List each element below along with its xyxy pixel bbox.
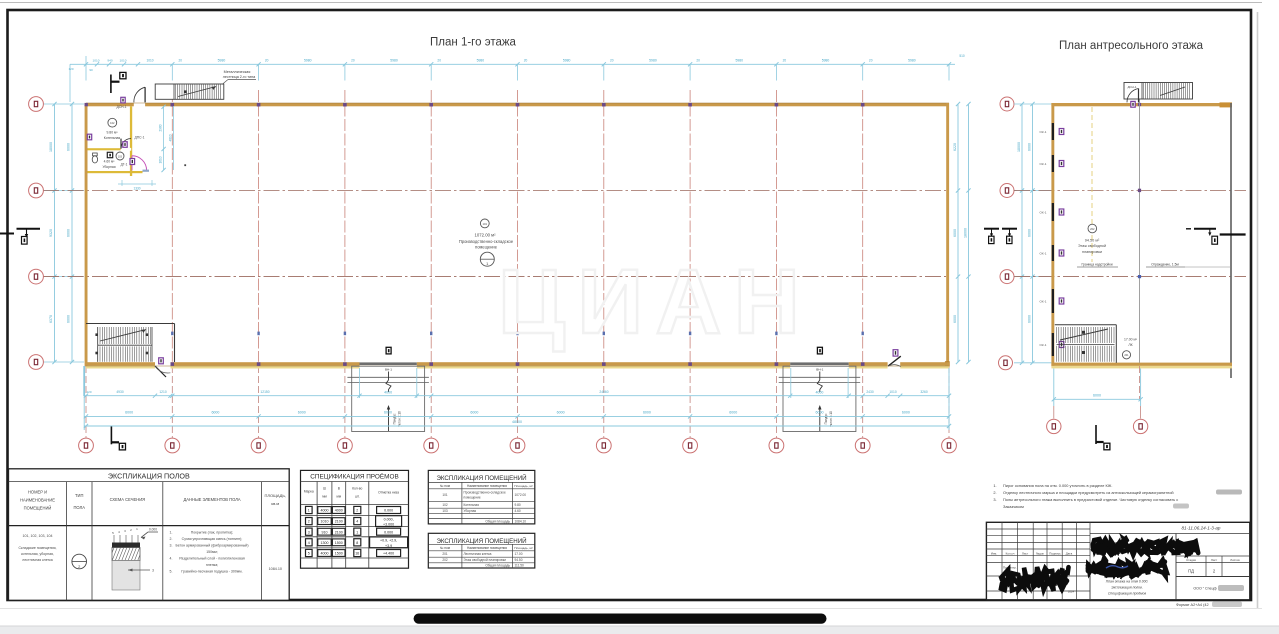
svg-text:1.: 1. [993,483,996,488]
svg-text:20: 20 [610,59,614,63]
svg-text:Общая площадь: Общая площадь [485,520,510,524]
svg-text:6000: 6000 [1093,393,1101,397]
svg-text:3260: 3260 [920,390,928,394]
svg-text:Спецификация проёмов: Спецификация проёмов [1108,592,1147,596]
svg-text:18000: 18000 [1017,142,1021,152]
svg-text:Стадия: Стадия [1186,558,1196,562]
svg-text:Складские помещения,: Складские помещения, [18,546,56,550]
svg-text:4: 4 [356,520,358,524]
svg-text:4000: 4000 [384,391,392,395]
svg-text:17.00 м²: 17.00 м² [1124,338,1138,342]
svg-text:6000: 6000 [816,410,824,414]
svg-text:Заказчиком: Заказчиком [1003,504,1024,509]
svg-text:5: 5 [308,552,310,556]
svg-text:планировки: планировки [1082,250,1102,254]
svg-text:ЭКСПЛИКАЦИЯ ПОЛОВ: ЭКСПЛИКАЦИЯ ПОЛОВ [108,472,190,481]
svg-text:ООО " Спецф: ООО " Спецф [1193,587,1216,591]
svg-text:+3.000: +3.000 [383,523,394,527]
svg-text:6000: 6000 [384,410,392,414]
svg-text:СПЕЦИФИКАЦИЯ ПРОЁМОВ: СПЕЦИФИКАЦИЯ ПРОЁМОВ [310,473,398,481]
svg-text:Листов: Листов [1230,558,1240,562]
svg-text:20: 20 [869,59,873,63]
svg-text:90: 90 [89,68,93,72]
svg-text:102: 102 [442,503,448,507]
svg-text:3: 3 [308,530,310,534]
svg-text:6000: 6000 [125,410,133,414]
svg-text:Разделительный слой - полиэтил: Разделительный слой - полиэтиленовая [179,557,245,561]
svg-text:Кол.уч: Кол.уч [1006,552,1015,556]
svg-text:Полы антресольного этажа выпол: Полы антресольного этажа выполнить в пре… [1003,497,1178,502]
svg-text:1500: 1500 [335,541,343,545]
svg-text:помещение: помещение [475,245,498,250]
svg-text:1010: 1010 [120,59,127,63]
svg-text:20: 20 [437,59,441,63]
svg-text:20: 20 [696,59,700,63]
svg-text:ДСН-1: ДСН-1 [1127,85,1136,89]
svg-text:1330: 1330 [133,187,140,191]
svg-text:81-11.06.24-1-3-ар: 81-11.06.24-1-3-ар [1182,526,1221,531]
svg-text:ОК-1: ОК-1 [1040,130,1047,134]
svg-text:ДПС-1: ДПС-1 [135,136,145,140]
svg-text:6000: 6000 [67,229,71,237]
svg-text:ВН-1: ВН-1 [816,367,823,371]
svg-text:Наименование помещения: Наименование помещения [467,546,507,550]
svg-text:24060: 24060 [599,390,608,394]
svg-text:3.: 3. [993,497,996,502]
svg-text:8: 8 [356,541,358,545]
svg-text:ПЛОЩАДЬ,: ПЛОЩАДЬ, [264,493,286,498]
svg-text:5980: 5980 [390,59,398,63]
svg-text:5980: 5980 [563,59,571,63]
svg-text:6000: 6000 [470,410,478,414]
svg-text:4000: 4000 [321,509,329,513]
svg-text:Этаж свободной: Этаж свободной [1078,244,1106,248]
svg-text:Котельная: Котельная [104,136,121,140]
svg-text:лестничная клетка: лестничная клетка [22,558,52,562]
svg-text:№ пом: № пом [440,484,450,488]
svg-text:1: 1 [356,530,358,534]
svg-text:202: 202 [1090,227,1095,231]
svg-text:1010: 1010 [889,390,897,394]
svg-text:1010: 1010 [93,59,100,63]
svg-text:Гравийно-песчаная подушка - 30: Гравийно-песчаная подушка - 300мм. [181,570,242,574]
svg-text:18000: 18000 [963,228,967,238]
svg-text:120: 120 [86,390,91,394]
svg-text:5980: 5980 [218,59,226,63]
svg-text:2100: 2100 [335,530,343,534]
svg-text:Лестничная клетка: Лестничная клетка [464,552,492,556]
svg-text:9320: 9320 [49,229,53,237]
svg-text:уклон 1:10: уклон 1:10 [829,411,833,427]
svg-text:94.50: 94.50 [515,558,523,562]
svg-text:940: 940 [107,59,112,63]
svg-text:ЦИАН: ЦИАН [498,251,812,353]
svg-text:103: 103 [118,155,123,158]
svg-text:Отметка низа: Отметка низа [378,491,399,495]
svg-text:1610: 1610 [159,156,163,163]
svg-text:Экспликация полов.: Экспликация полов. [1111,586,1143,590]
svg-text:Кол-во: Кол-во [352,487,362,491]
svg-text:12150: 12150 [260,390,269,394]
svg-text:6000: 6000 [211,410,219,414]
svg-text:4000: 4000 [815,391,823,395]
svg-text:4.60 м²: 4.60 м² [104,159,116,163]
svg-text:ОК-1: ОК-1 [1040,299,1047,303]
svg-text:Формат А2+А4 (42: Формат А2+А4 (42 [1176,603,1209,607]
svg-text:2.: 2. [170,537,173,541]
svg-text:3: 3 [152,569,154,573]
svg-text:1.: 1. [170,531,173,535]
svg-text:ЭКСПЛИКАЦИЯ ПОМЕЩЕНИЙ: ЭКСПЛИКАЦИЯ ПОМЕЩЕНИЙ [436,537,526,545]
svg-text:6000: 6000 [953,229,957,237]
svg-text:ОК-1: ОК-1 [1040,162,1047,166]
svg-text:103: 103 [442,509,448,513]
svg-text:Пандус: Пандус [824,413,828,424]
svg-text:Лист: Лист [1022,552,1029,556]
svg-text:101: 101 [483,222,488,226]
svg-text:4.: 4. [170,557,173,561]
svg-text:202: 202 [442,558,448,562]
svg-text:ДАННЫЕ ЭЛЕМЕНТОВ ПОЛА: ДАННЫЕ ЭЛЕМЕНТОВ ПОЛА [184,497,241,502]
svg-text:101, 102, 103, 104: 101, 102, 103, 104 [23,534,53,538]
svg-text:2: 2 [356,509,358,513]
svg-text:пленка;: пленка; [206,563,218,567]
svg-text:Производственно-складское: Производственно-складское [459,239,514,244]
svg-text:Площадь, м²: Площадь, м² [514,484,532,488]
svg-text:2100: 2100 [335,520,343,524]
svg-text:+0.9, +2.9,: +0.9, +2.9, [380,539,397,543]
svg-text:Пирог основания пола на отм. 0: Пирог основания пола на отм. 0.000 уточн… [1003,483,1112,488]
svg-text:1: 1 [308,509,310,513]
svg-text:16: 16 [355,552,359,556]
svg-text:ПОМЕЩЕНИЙ: ПОМЕЩЕНИЙ [24,506,52,511]
svg-text:6000: 6000 [729,410,737,414]
svg-text:20: 20 [351,59,355,63]
svg-text:2.: 2. [993,490,996,495]
svg-text:9.80 м²: 9.80 м² [106,131,118,135]
svg-text:1072.00 м²: 1072.00 м² [474,232,496,237]
svg-text:510: 510 [959,54,965,58]
svg-text:План этажа на отм 0.000.: План этажа на отм 0.000. [1106,580,1149,584]
svg-text:2980: 2980 [159,124,163,131]
svg-text:4000: 4000 [335,509,343,513]
svg-text:Ограждение, 1.5м: Ограждение, 1.5м [1151,262,1179,266]
svg-text:Площадь, м²: Площадь, м² [514,546,532,550]
svg-text:Ш: Ш [323,487,326,491]
svg-text:1010: 1010 [146,59,153,63]
svg-text:201: 201 [442,552,448,556]
svg-text:Этаж свободной планировки: Этаж свободной планировки [464,558,507,562]
svg-text:5980: 5980 [735,59,743,63]
svg-text:102: 102 [110,121,115,125]
svg-text:НОМЕР И: НОМЕР И [28,490,47,495]
svg-text:111.50: 111.50 [515,564,525,568]
svg-text:помещение: помещение [464,495,481,499]
svg-text:СХЕМА СЕЧЕНИЯ: СХЕМА СЕЧЕНИЯ [110,497,146,502]
svg-text:ЛК: ЛК [1128,343,1132,347]
svg-text:ПОЛА: ПОЛА [73,505,85,510]
svg-text:201: 201 [1124,354,1129,357]
svg-text:ДСН-1: ДСН-1 [117,105,127,109]
svg-text:6370: 6370 [49,315,53,323]
svg-text:4000: 4000 [321,552,329,556]
svg-text:Подпись: Подпись [1049,552,1061,556]
svg-text:1210: 1210 [159,390,167,394]
svg-text:4810: 4810 [169,134,173,141]
svg-text:2024: 2024 [1068,590,1074,594]
svg-text:6000: 6000 [953,315,957,323]
svg-text:5980: 5980 [908,59,916,63]
svg-text:ВН-1: ВН-1 [385,367,392,371]
svg-text:0.000,: 0.000, [384,518,394,522]
svg-text:120: 120 [68,67,73,71]
svg-text:уклон 1:10: уклон 1:10 [398,411,402,427]
svg-text:Общая площадь: Общая площадь [485,564,510,568]
svg-text:17.00: 17.00 [515,552,523,556]
svg-text:шт.: шт. [355,495,360,499]
svg-text:5.: 5. [170,570,173,574]
svg-text:2: 2 [308,520,310,524]
svg-text:4.60: 4.60 [515,509,521,513]
svg-text:Уборная: Уборная [464,509,477,513]
svg-text:ОК-1: ОК-1 [1040,343,1047,347]
svg-text:№док: №док [1036,552,1044,556]
svg-text:6000: 6000 [67,143,71,151]
svg-text:6220: 6220 [953,143,957,151]
svg-text:1084.10: 1084.10 [515,520,527,524]
svg-text:1072.00: 1072.00 [515,493,527,497]
svg-text:18000: 18000 [49,142,53,152]
svg-text:Изм.: Изм. [991,552,997,556]
svg-text:котельная, уборная,: котельная, уборная, [21,552,54,556]
svg-text:ЭКСПЛИКАЦИЯ ПОМЕЩЕНИЙ: ЭКСПЛИКАЦИЯ ПОМЕЩЕНИЙ [436,474,526,482]
svg-text:20: 20 [524,59,528,63]
svg-text:Лист: Лист [1211,558,1218,562]
svg-text:Покрытие (лак, пропитка);: Покрытие (лак, пропитка); [191,531,234,535]
svg-text:6000: 6000 [298,410,306,414]
svg-text:ТИП: ТИП [75,493,83,498]
svg-text:План антресольного этажа: План антресольного этажа [1059,40,1204,52]
svg-text:№ пом: № пом [440,546,450,550]
svg-text:Отделку лестничного марша и пл: Отделку лестничного марша и площадки пре… [1003,490,1174,495]
svg-text:+3.9: +3.9 [385,544,392,548]
svg-text:лестница 2-го типа: лестница 2-го типа [223,75,256,79]
svg-text:НАИМЕНОВАНИЕ: НАИМЕНОВАНИЕ [20,498,55,503]
svg-text:6000: 6000 [557,410,565,414]
svg-text:5980: 5980 [477,59,485,63]
svg-text:Граница надстройки: Граница надстройки [1081,262,1112,266]
svg-text:ПД: ПД [1188,569,1194,574]
svg-text:1500: 1500 [335,552,343,556]
svg-text:9.80: 9.80 [515,503,521,507]
svg-text:4930: 4930 [116,390,124,394]
svg-text:910: 910 [322,530,328,534]
svg-text:ОК-1: ОК-1 [1040,251,1047,255]
svg-text:5980: 5980 [822,59,830,63]
svg-text:Марка: Марка [304,490,314,494]
svg-text:6000: 6000 [1027,315,1031,323]
svg-text:3.: 3. [170,544,173,548]
svg-text:План 1-го этажа: План 1-го этажа [430,37,517,49]
svg-text:+4.400: +4.400 [383,552,394,556]
svg-text:ДГ-1: ДГ-1 [121,162,128,166]
svg-text:5980: 5980 [649,59,657,63]
svg-text:Бетон армированный (фиброармир: Бетон армированный (фиброармированный) [175,544,248,548]
svg-text:Металлическая: Металлическая [224,70,251,74]
svg-text:4: 4 [308,541,310,545]
svg-text:Уборная: Уборная [102,165,115,169]
svg-text:Пандус: Пандус [393,413,397,424]
svg-text:1300: 1300 [321,541,329,545]
svg-text:5980: 5980 [304,59,312,63]
svg-text:ОК-1: ОК-1 [1040,210,1047,214]
svg-text:2430: 2430 [866,390,874,394]
svg-text:6000: 6000 [1027,229,1031,237]
svg-text:150мм;: 150мм; [206,550,218,554]
svg-text:мм: мм [337,495,342,499]
svg-text:20: 20 [783,59,787,63]
svg-text:Наименование помещения: Наименование помещения [467,484,507,488]
svg-text:6000: 6000 [643,410,651,414]
svg-text:1084.10: 1084.10 [269,567,282,571]
svg-text:Сухая упрочняющая смесь (топпи: Сухая упрочняющая смесь (топпинг); [182,537,243,541]
svg-text:6000: 6000 [902,410,910,414]
svg-text:Дата: Дата [1066,552,1073,556]
svg-text:20: 20 [179,59,183,63]
svg-text:20: 20 [265,59,269,63]
svg-text:0.000: 0.000 [384,530,393,534]
svg-text:мм: мм [322,495,327,499]
svg-text:0.000: 0.000 [149,528,157,532]
svg-text:6000: 6000 [1027,143,1031,151]
svg-text:48000: 48000 [512,420,522,424]
svg-text:94.50 м²: 94.50 м² [1085,238,1100,242]
svg-text:6000: 6000 [67,315,71,323]
svg-text:101: 101 [442,493,448,497]
svg-text:кв.м: кв.м [271,501,279,506]
svg-text:0.000: 0.000 [384,509,393,513]
svg-text:Производственно-складское: Производственно-складское [464,491,506,495]
svg-text:Котельная: Котельная [464,503,480,507]
svg-text:1010: 1010 [321,520,329,524]
